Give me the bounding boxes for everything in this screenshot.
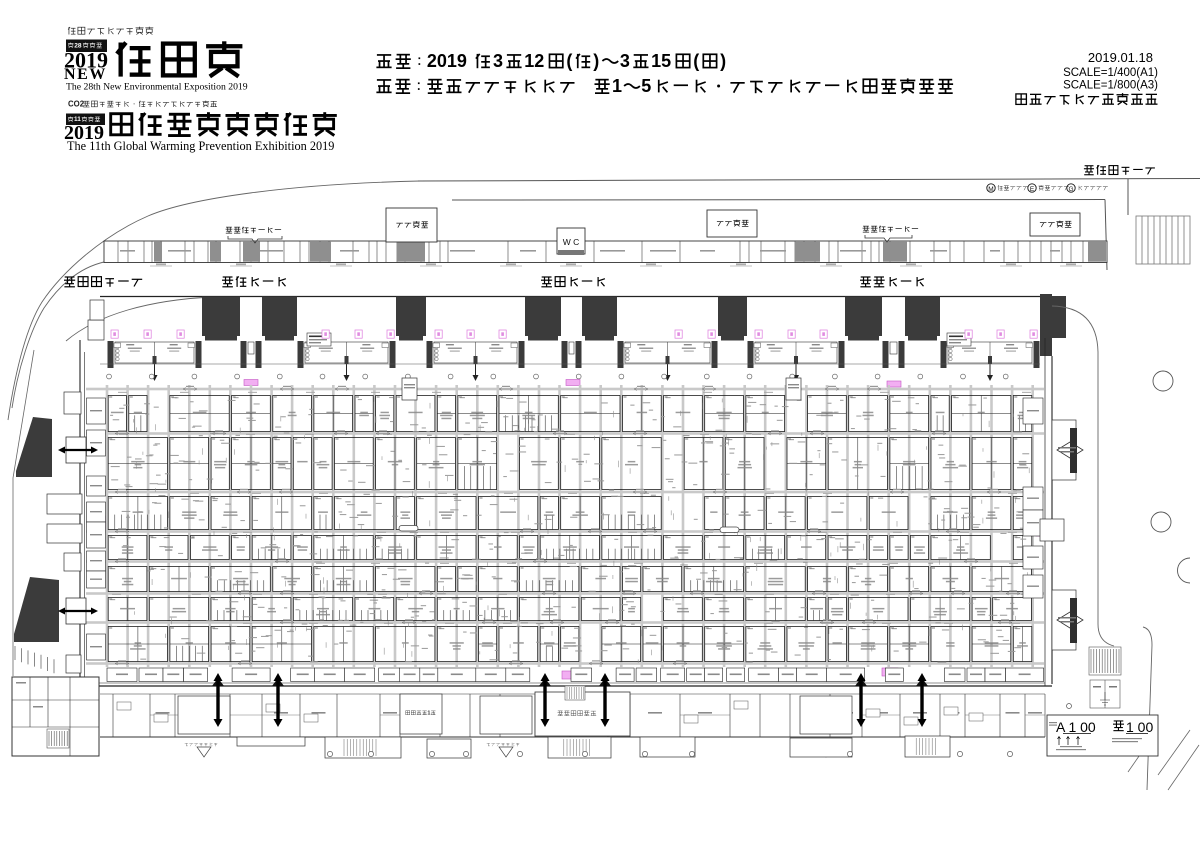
svg-text:1: 1 bbox=[612, 76, 622, 96]
svg-text:3: 3 bbox=[493, 51, 503, 71]
svg-text:12: 12 bbox=[524, 51, 544, 71]
svg-text:2019: 2019 bbox=[427, 51, 467, 71]
svg-text:E: E bbox=[1030, 186, 1035, 193]
svg-text:1: 1 bbox=[427, 711, 430, 717]
svg-text:3: 3 bbox=[620, 51, 630, 71]
svg-text:M: M bbox=[988, 186, 993, 193]
svg-text:CO2: CO2 bbox=[68, 99, 85, 108]
svg-text:(: ( bbox=[693, 51, 699, 71]
svg-text:SCALE=1/800(A3): SCALE=1/800(A3) bbox=[1063, 80, 1158, 92]
svg-text:1 00: 1 00 bbox=[1126, 719, 1153, 735]
svg-text:The 28th New Environmental Exp: The 28th New Environmental Exposition 20… bbox=[66, 82, 248, 93]
svg-text:2019.01.18: 2019.01.18 bbox=[1088, 50, 1153, 65]
svg-text:G: G bbox=[1068, 186, 1073, 193]
svg-text:5: 5 bbox=[641, 76, 651, 96]
svg-text:): ) bbox=[720, 51, 726, 71]
svg-text:SCALE=1/400(A1): SCALE=1/400(A1) bbox=[1063, 67, 1158, 79]
svg-text:The 11th Global Warming Preven: The 11th Global Warming Prevention Exhib… bbox=[67, 139, 334, 153]
svg-text:W C: W C bbox=[563, 237, 580, 247]
svg-text:15: 15 bbox=[651, 51, 671, 71]
svg-text:NEW: NEW bbox=[64, 66, 107, 83]
svg-text:A 1 00: A 1 00 bbox=[1056, 719, 1096, 735]
svg-text:): ) bbox=[593, 51, 599, 71]
svg-text:(: ( bbox=[566, 51, 572, 71]
